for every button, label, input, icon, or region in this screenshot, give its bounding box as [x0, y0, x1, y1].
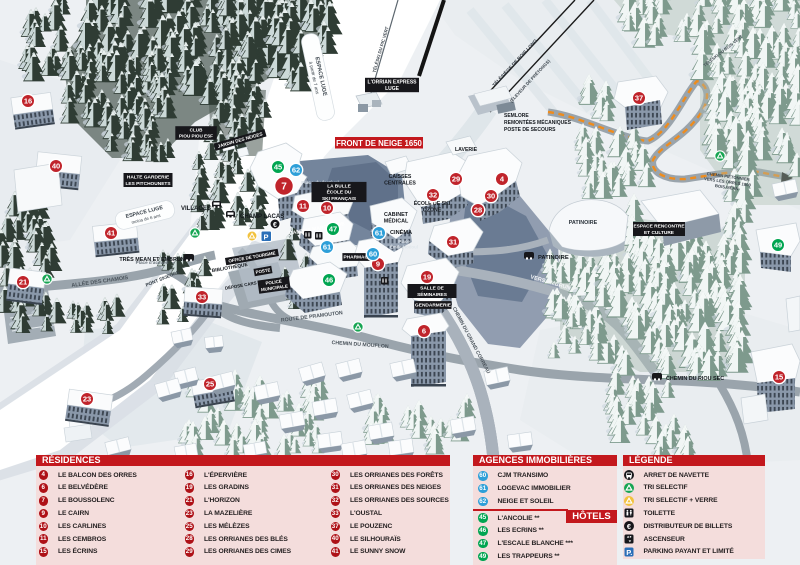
svg-text:HALTE GARDERIE: HALTE GARDERIE — [127, 175, 170, 181]
svg-text:PIOU PIOU ESF: PIOU PIOU ESF — [179, 134, 213, 139]
svg-text:9: 9 — [376, 260, 380, 269]
svg-text:LAVERIE: LAVERIE — [455, 147, 478, 153]
svg-text:ET CULTURE: ET CULTURE — [644, 230, 675, 236]
svg-text:62: 62 — [292, 166, 300, 175]
svg-text:FRONT DE NEIGE 1650: FRONT DE NEIGE 1650 — [336, 139, 422, 148]
svg-text:CLUB: CLUB — [190, 128, 203, 133]
svg-text:REMONTÉES MÉCANIQUES: REMONTÉES MÉCANIQUES — [504, 118, 572, 126]
svg-text:CHEMIN DU RIOU SEC: CHEMIN DU RIOU SEC — [666, 376, 724, 382]
svg-text:Place: Place — [398, 239, 410, 244]
svg-text:P.: P. — [626, 548, 632, 557]
svg-text:61: 61 — [323, 243, 331, 252]
svg-text:11: 11 — [299, 202, 307, 211]
svg-text:SALLE DE: SALLE DE — [420, 286, 445, 292]
svg-text:40: 40 — [52, 162, 60, 171]
svg-text:23: 23 — [83, 395, 91, 404]
svg-text:Émile Hodoul: Émile Hodoul — [390, 245, 418, 250]
svg-text:POSTE DE SECOURS: POSTE DE SECOURS — [504, 127, 556, 133]
svg-text:MÉDICAL: MÉDICAL — [384, 217, 409, 225]
svg-text:L'ORRIAN EXPRESS: L'ORRIAN EXPRESS — [368, 80, 418, 86]
svg-text:CHAMP LACAS: CHAMP LACAS — [240, 214, 284, 220]
svg-text:ESPACE RENCONTRE: ESPACE RENCONTRE — [633, 224, 685, 230]
svg-text:29: 29 — [452, 175, 460, 184]
svg-text:19: 19 — [423, 273, 431, 282]
svg-text:30: 30 — [487, 192, 495, 201]
svg-text:28: 28 — [474, 206, 482, 215]
svg-text:LUGE: LUGE — [385, 86, 400, 92]
svg-text:SEMLORE: SEMLORE — [504, 113, 529, 119]
svg-text:46: 46 — [325, 276, 333, 285]
svg-text:7: 7 — [281, 182, 287, 193]
svg-text:47: 47 — [329, 225, 337, 234]
svg-text:LA BULLE: LA BULLE — [327, 184, 351, 190]
svg-text:OZONE: OZONE — [423, 207, 442, 213]
svg-text:49: 49 — [774, 241, 782, 250]
svg-text:€: € — [273, 222, 277, 229]
svg-text:VILLAGES: VILLAGES — [181, 206, 211, 212]
svg-text:31: 31 — [449, 238, 457, 247]
svg-text:60: 60 — [369, 250, 377, 259]
svg-text:PATINOIRE: PATINOIRE — [538, 255, 569, 261]
svg-text:16: 16 — [24, 97, 32, 106]
svg-text:21: 21 — [19, 278, 27, 287]
svg-text:25: 25 — [206, 380, 214, 389]
svg-text:Place d'accueil: Place d'accueil — [136, 260, 169, 265]
svg-text:61: 61 — [375, 229, 383, 238]
svg-text:41: 41 — [107, 229, 115, 238]
svg-text:33: 33 — [198, 293, 206, 302]
svg-text:PATINOIRE: PATINOIRE — [569, 220, 598, 226]
svg-text:CABINET: CABINET — [384, 212, 409, 218]
svg-text:CAISSES: CAISSES — [389, 174, 412, 180]
svg-text:GENDARMERIE: GENDARMERIE — [415, 303, 452, 309]
svg-text:32: 32 — [429, 191, 437, 200]
svg-text:CINÉMA: CINÉMA — [390, 228, 412, 236]
svg-text:6: 6 — [422, 327, 426, 336]
svg-text:37: 37 — [635, 94, 643, 103]
svg-text:10: 10 — [323, 204, 331, 213]
svg-text:15: 15 — [775, 373, 783, 382]
svg-text:CENTRALES: CENTRALES — [384, 180, 416, 186]
svg-text:P: P — [263, 233, 268, 242]
svg-text:45: 45 — [274, 163, 282, 172]
svg-text:LES PITCHOUNETS: LES PITCHOUNETS — [125, 181, 171, 187]
